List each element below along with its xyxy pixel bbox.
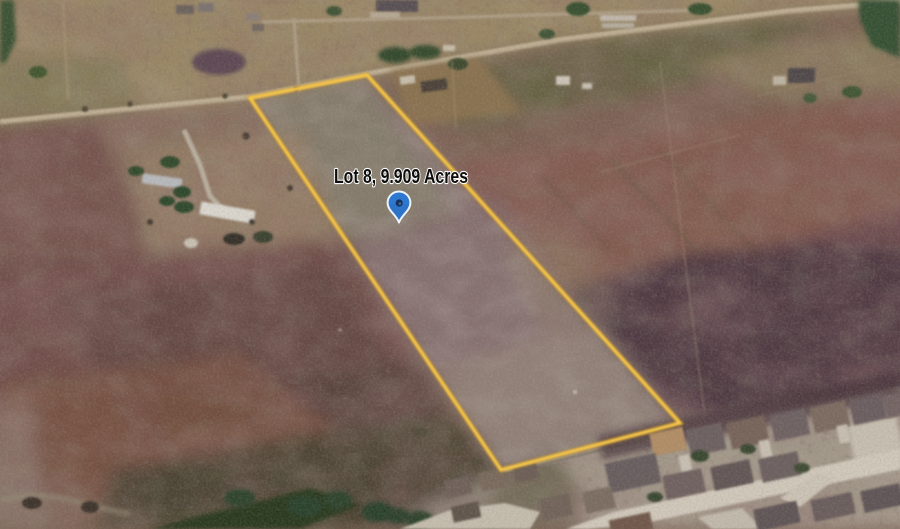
svg-text:Lot 8, 9.909 Acres: Lot 8, 9.909 Acres (334, 165, 468, 188)
